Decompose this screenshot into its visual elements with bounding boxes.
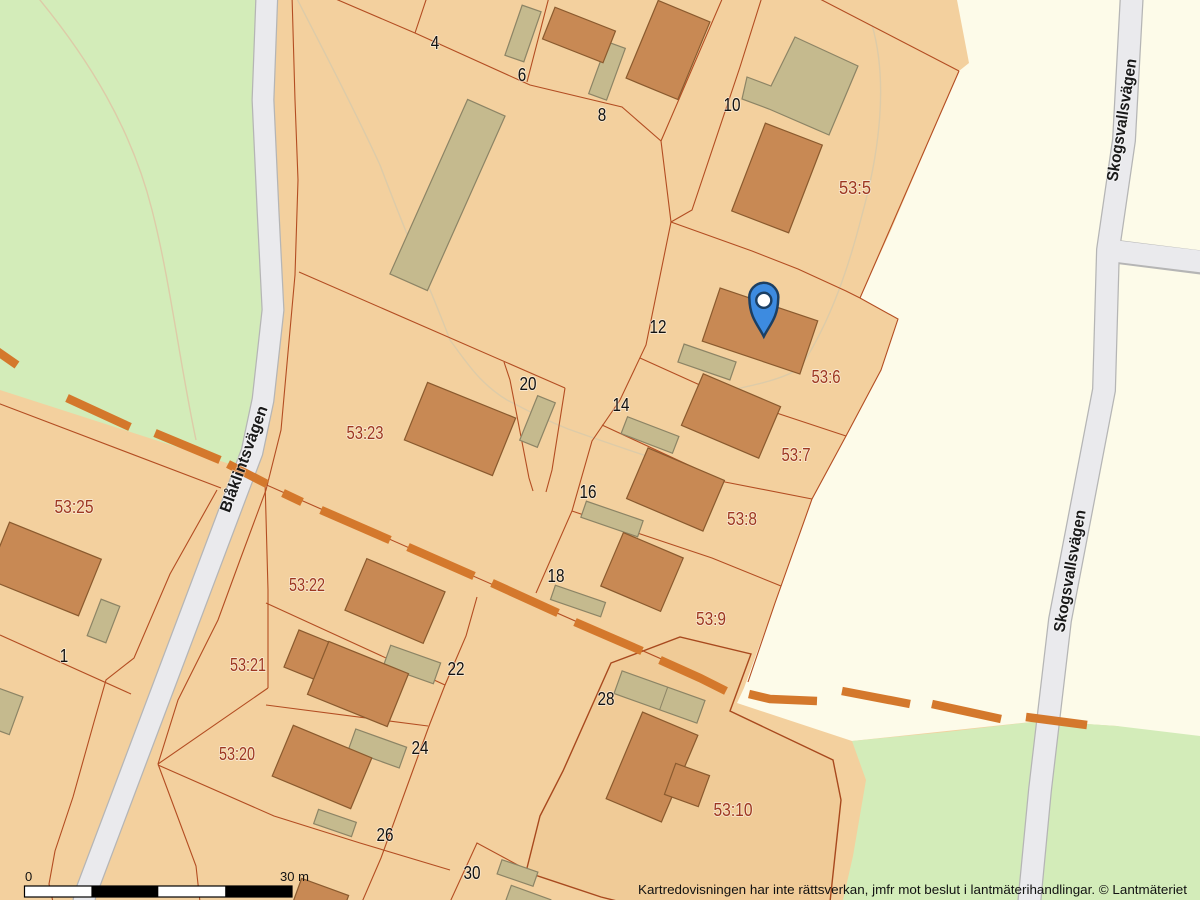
- svg-text:53:20: 53:20: [219, 743, 255, 764]
- svg-text:12: 12: [650, 317, 667, 337]
- svg-text:53:5: 53:5: [839, 177, 871, 198]
- svg-text:28: 28: [598, 689, 615, 709]
- svg-text:53:6: 53:6: [812, 366, 841, 387]
- svg-text:10: 10: [724, 95, 741, 115]
- svg-text:53:22: 53:22: [289, 574, 325, 595]
- svg-text:24: 24: [412, 738, 429, 758]
- svg-text:30: 30: [464, 863, 481, 883]
- svg-text:30 m: 30 m: [280, 869, 309, 884]
- svg-text:53:7: 53:7: [782, 444, 811, 465]
- svg-text:1: 1: [60, 646, 69, 666]
- svg-text:53:23: 53:23: [347, 422, 384, 443]
- svg-text:0: 0: [25, 869, 32, 884]
- svg-text:22: 22: [448, 659, 465, 679]
- svg-text:53:25: 53:25: [55, 496, 94, 517]
- svg-text:53:9: 53:9: [696, 608, 726, 629]
- svg-text:6: 6: [518, 65, 527, 85]
- svg-text:18: 18: [548, 566, 565, 586]
- svg-text:53:10: 53:10: [714, 799, 753, 820]
- svg-text:20: 20: [520, 374, 537, 394]
- svg-text:53:8: 53:8: [727, 508, 757, 529]
- svg-text:16: 16: [580, 482, 597, 502]
- svg-text:Kartredovisningen har inte rät: Kartredovisningen har inte rättsverkan, …: [638, 882, 1187, 897]
- svg-text:26: 26: [377, 825, 394, 845]
- svg-text:14: 14: [613, 395, 630, 415]
- svg-text:8: 8: [598, 105, 607, 125]
- svg-text:4: 4: [431, 33, 440, 53]
- svg-text:53:21: 53:21: [230, 654, 266, 675]
